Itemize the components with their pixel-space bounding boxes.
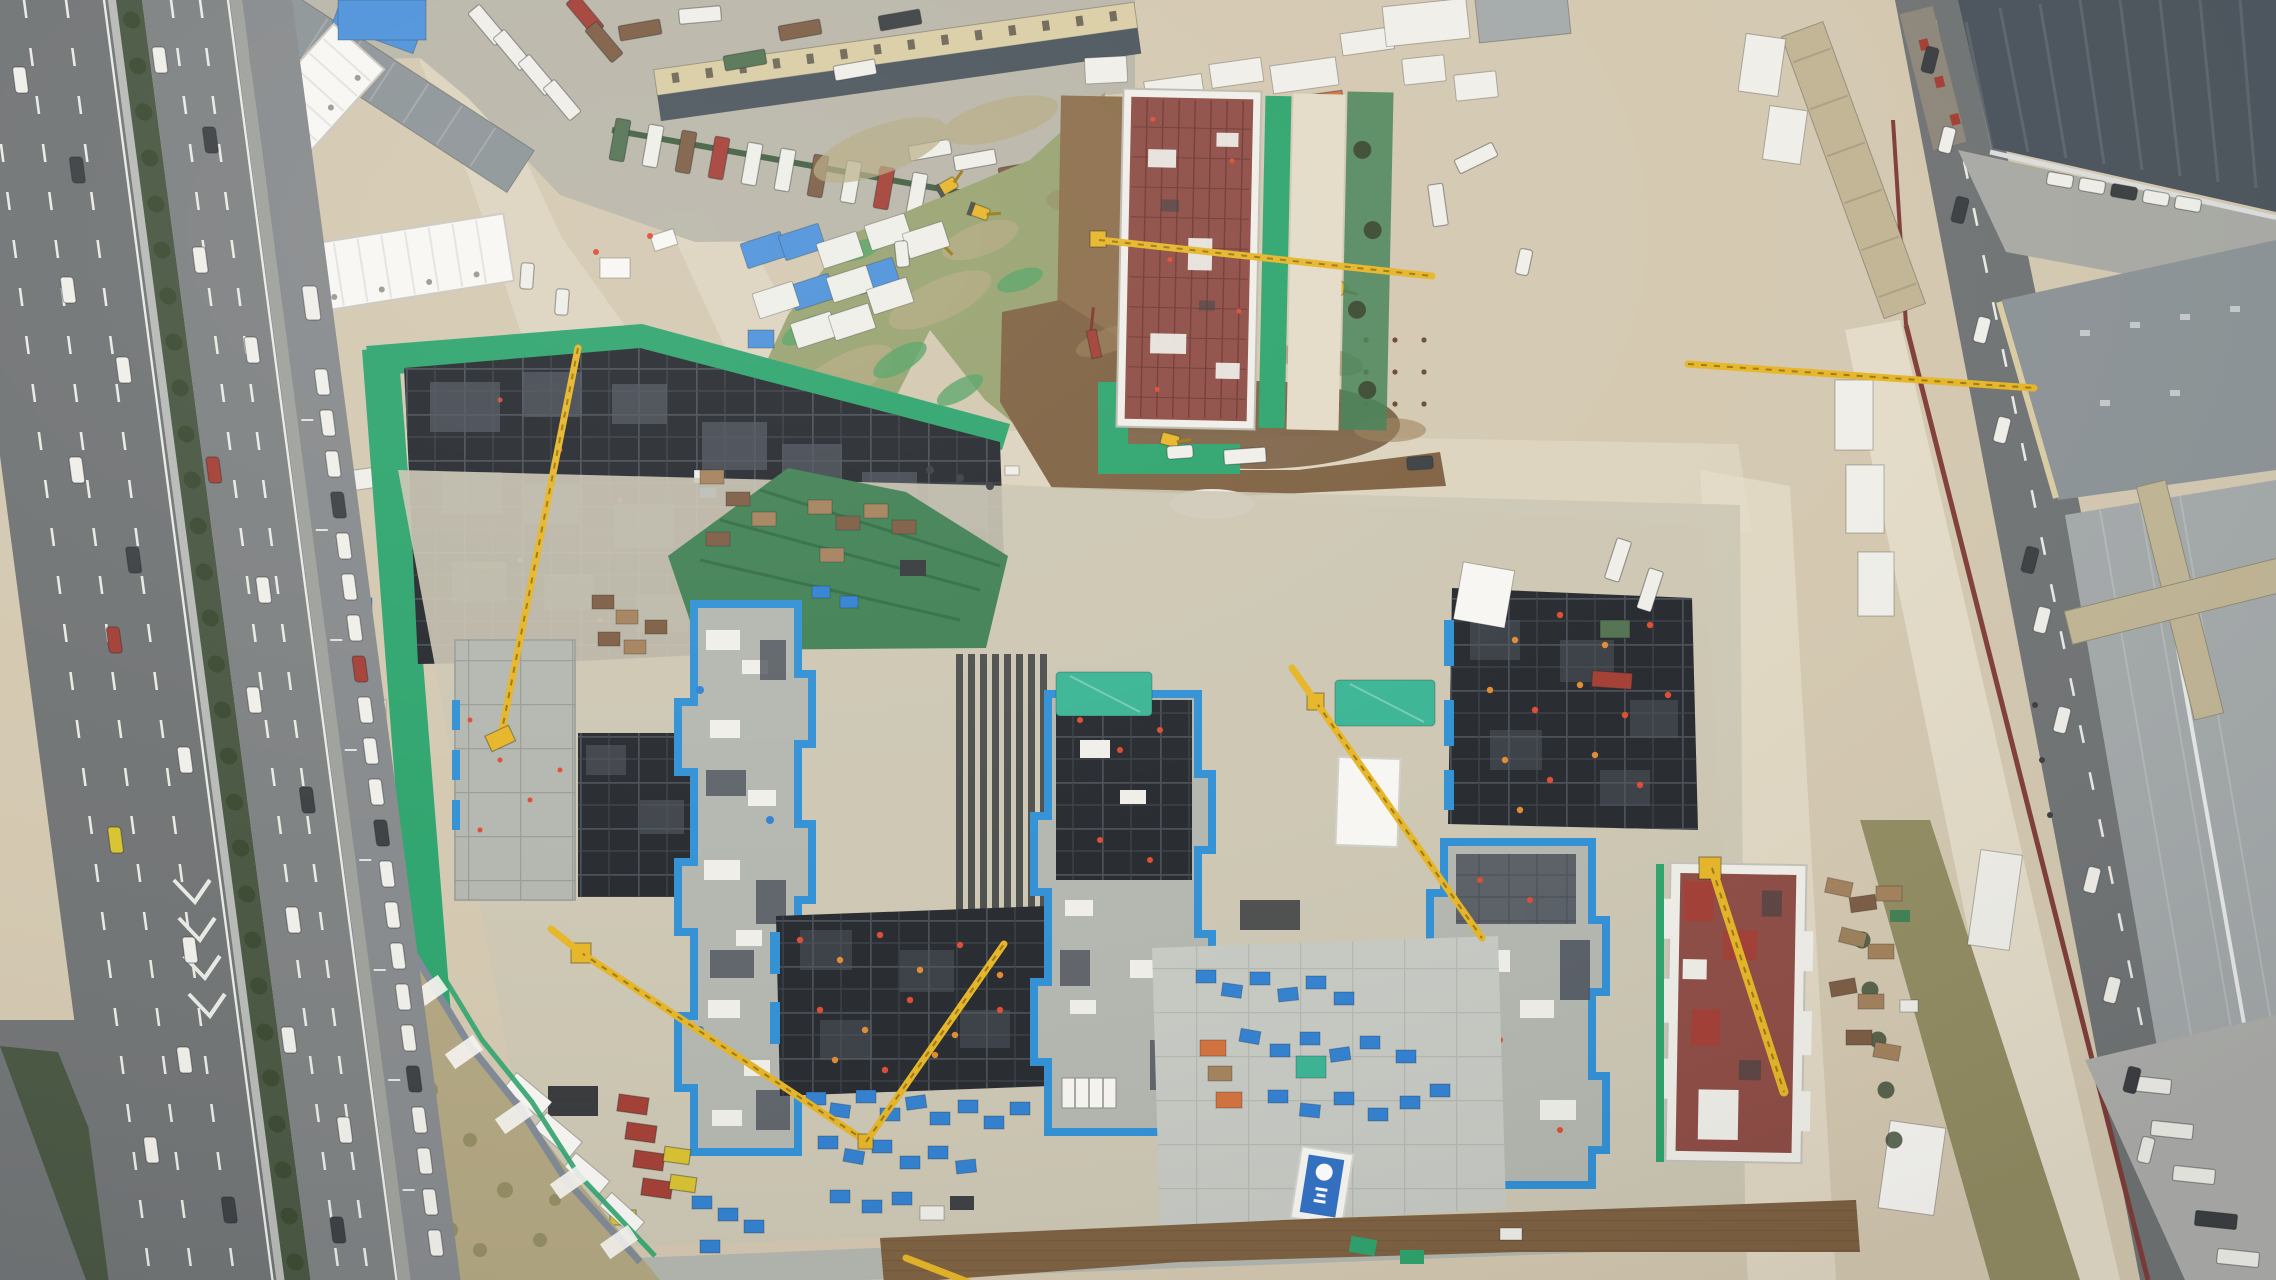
gate-hut (600, 258, 630, 278)
construction-company-banner (1291, 1146, 1354, 1225)
container-row (1835, 380, 1873, 450)
aerial-photo-root (0, 0, 2276, 1280)
black-formwork-deck-1 (770, 906, 1050, 1096)
vegetated-strip (1340, 92, 1393, 431)
building-b4-white-red (1657, 863, 1814, 1164)
aerial-photo (0, 0, 2276, 1280)
blue-tarp (338, 0, 426, 40)
